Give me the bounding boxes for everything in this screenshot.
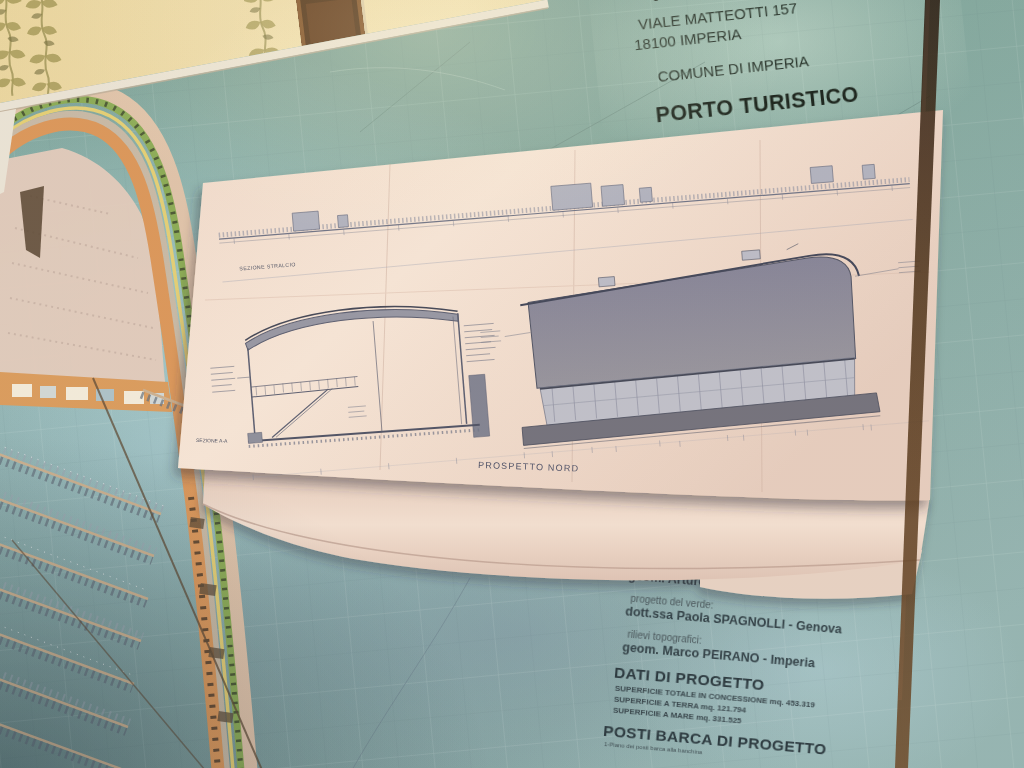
photo-of-harbor-project-board: PORTO DI IMPERIA VIALE MATTEOTTI 157 181… xyxy=(0,0,1024,768)
drawing-sheet: SEZIONE STRALCIO xyxy=(0,0,1024,768)
label-section: SEZIONE A-A xyxy=(196,437,228,444)
